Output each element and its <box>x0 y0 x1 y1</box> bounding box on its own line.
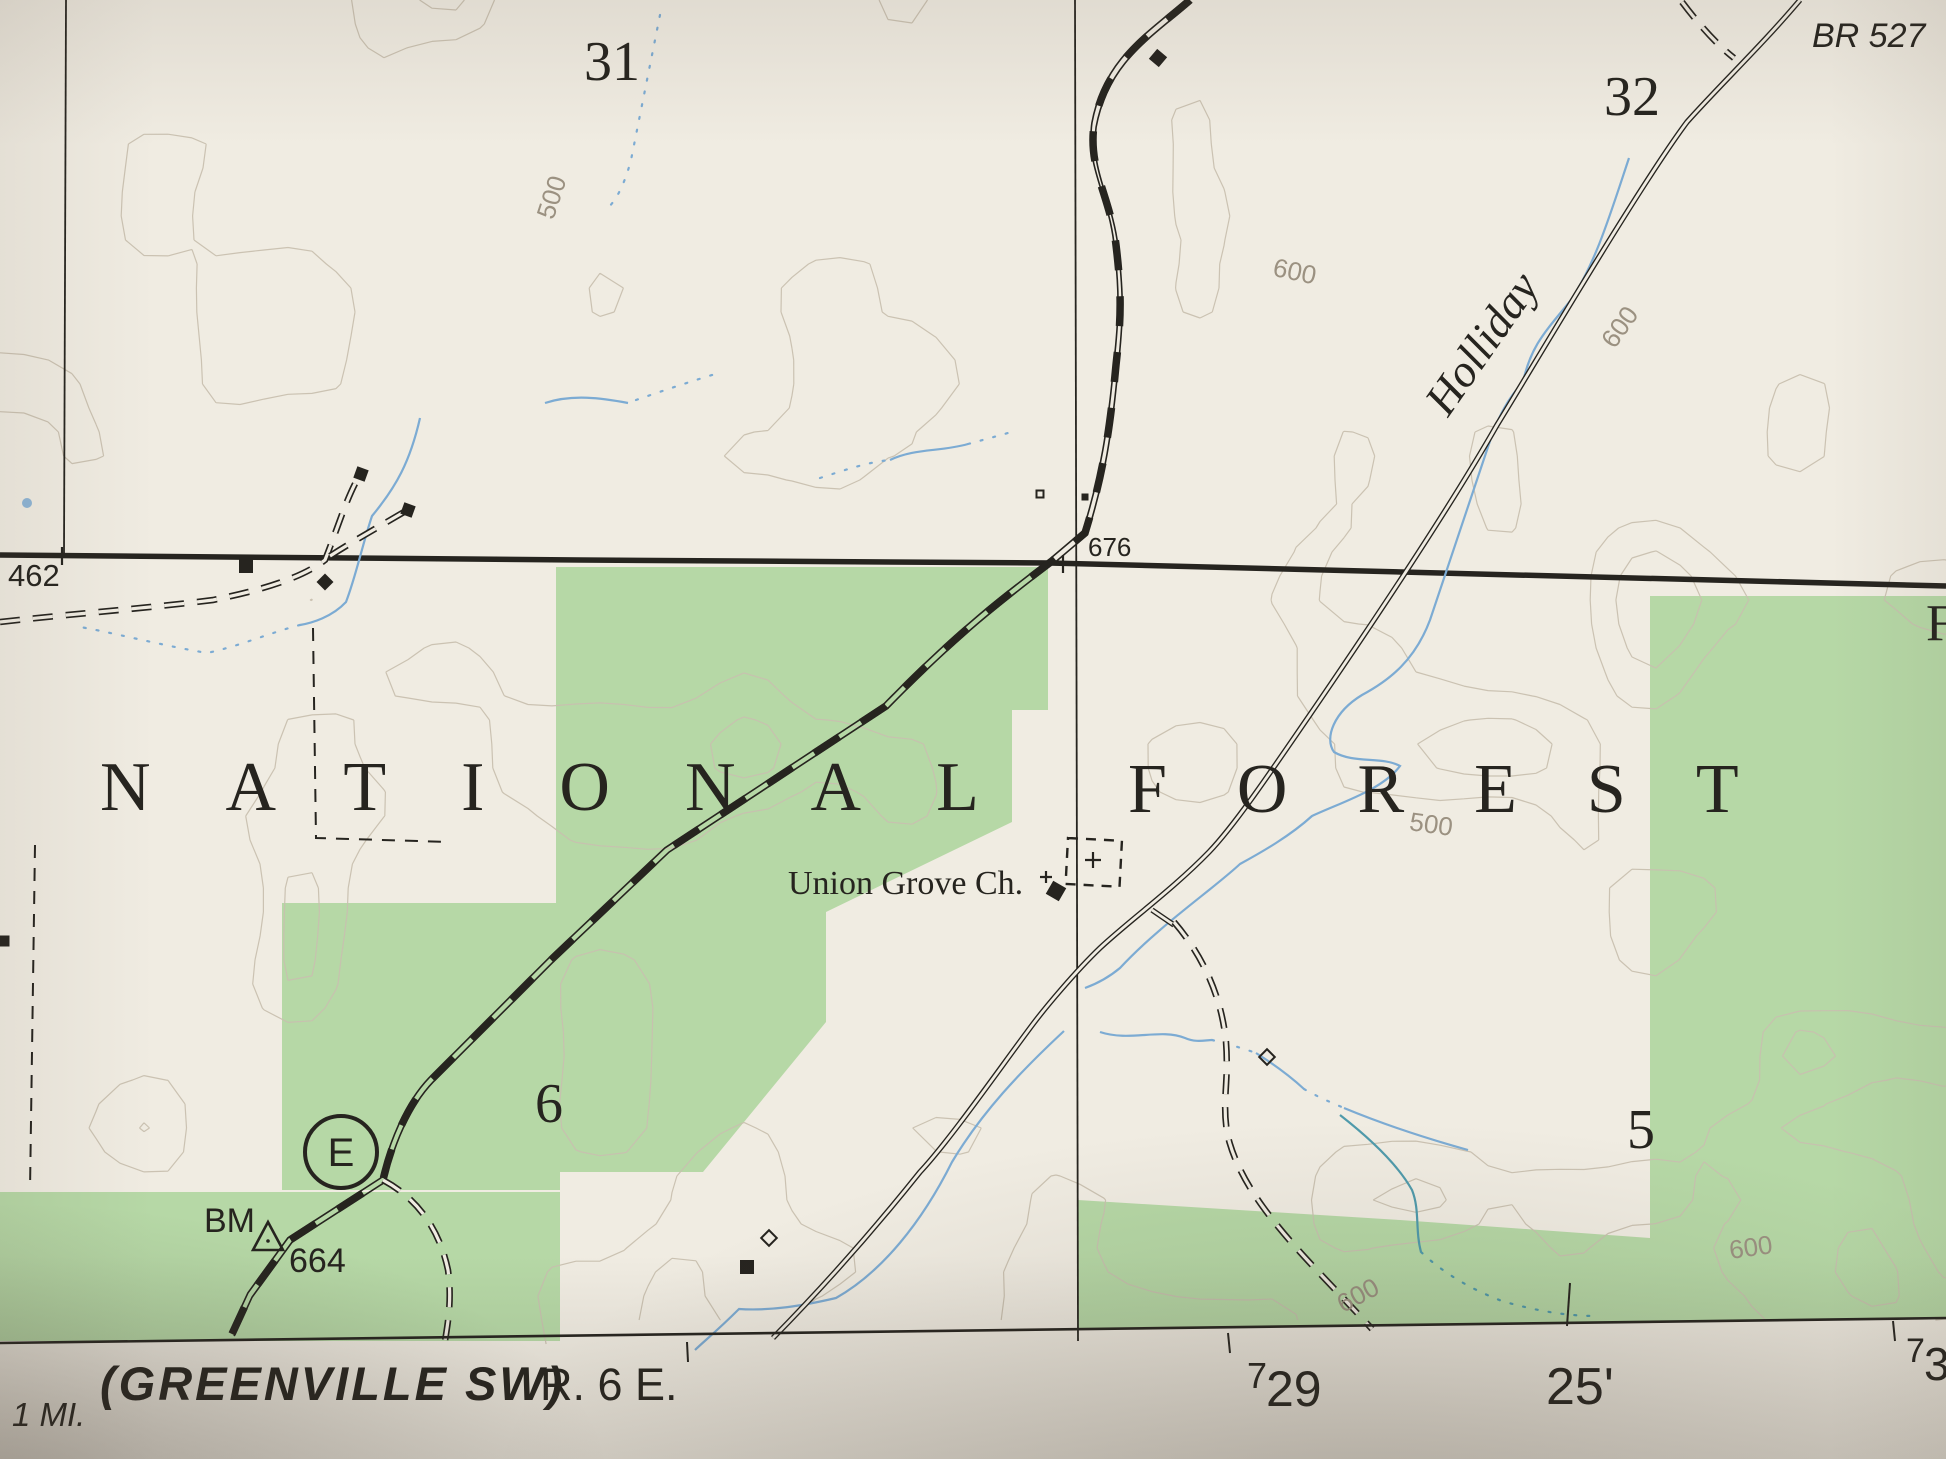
forest-name-line2: FOREST <box>1128 751 1809 828</box>
bridge-label-br527: BR 527 <box>1812 17 1926 55</box>
forest-area-west-column <box>282 903 560 1190</box>
grid-number-730-prefix: 7 <box>1906 1332 1925 1370</box>
building <box>402 504 415 517</box>
forest-area-southwest-band <box>0 1192 560 1341</box>
benchmark-dot <box>266 1239 270 1243</box>
contour-label-500: 500 <box>1408 806 1455 842</box>
edge-letter-f: F <box>1926 595 1946 652</box>
benchmark-664: 664 <box>289 1242 346 1280</box>
route-letter: E <box>328 1131 355 1175</box>
grid-minutes-25: 25' <box>1546 1358 1614 1416</box>
section-number-6: 6 <box>535 1073 563 1135</box>
grid-number-730: 30 <box>1924 1338 1946 1390</box>
range-label: R. 6 E. <box>540 1359 678 1410</box>
church-name: Union Grove Ch. <box>788 865 1023 902</box>
building <box>240 560 252 572</box>
spot-elevation-462: 462 <box>8 558 60 593</box>
grid-tick <box>687 1342 688 1362</box>
grid-number-729-prefix: 7 <box>1247 1355 1267 1396</box>
grid-number-729: 29 <box>1266 1361 1322 1417</box>
topo-map-photo: 313265NATIONALFOREST676462BR 527Holliday… <box>0 0 1946 1459</box>
building <box>355 468 368 481</box>
spot-elevation-676: 676 <box>1088 532 1131 562</box>
forest-name-line1: NATIONAL <box>100 749 1054 826</box>
benchmark-bm: BM <box>204 1202 255 1240</box>
adjoining-quad-name: (GREENVILLE SW) <box>100 1357 565 1410</box>
building-small <box>0 937 9 946</box>
section-number-32: 32 <box>1604 66 1660 128</box>
topo-map-canvas: 313265NATIONALFOREST676462BR 527Holliday… <box>0 0 1946 1459</box>
building-small <box>1083 495 1088 500</box>
contour-label-600: 600 <box>1727 1229 1774 1265</box>
scale-note-1mi: 1 MI. <box>12 1396 85 1433</box>
section-number-5: 5 <box>1627 1099 1655 1161</box>
building <box>741 1261 753 1273</box>
forest-area-east <box>1650 596 1946 1240</box>
spring-dot <box>22 498 32 508</box>
section-number-31: 31 <box>584 31 640 93</box>
